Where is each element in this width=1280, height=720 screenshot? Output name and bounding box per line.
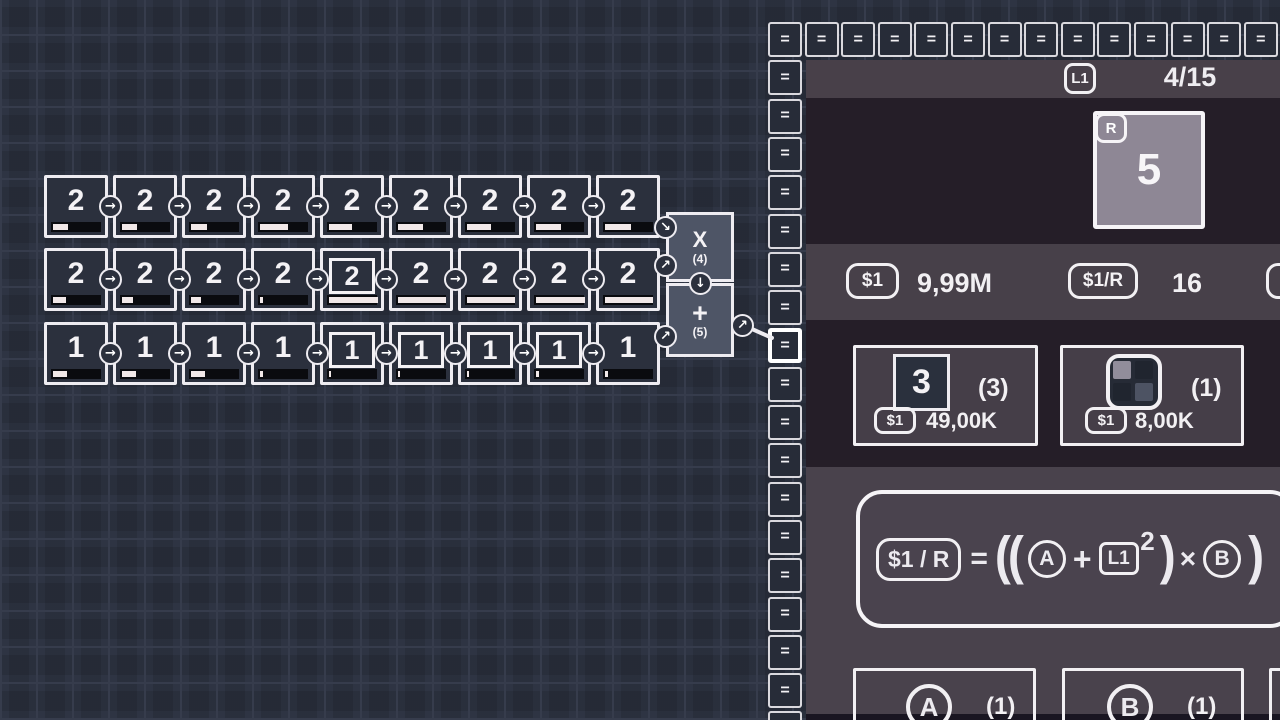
arrow-right-icon[interactable]: → bbox=[99, 268, 122, 291]
cell-value: 2 bbox=[482, 256, 499, 292]
rate-value: 16 bbox=[1172, 268, 1202, 299]
cell-progress-track bbox=[189, 369, 239, 379]
grid-2x2-icon bbox=[1106, 354, 1162, 410]
cell-progress-fill bbox=[605, 297, 653, 303]
shop-card-grid[interactable]: (1) $1 8,00K bbox=[1060, 345, 1244, 446]
arrow-up-right-icon[interactable]: ↗ bbox=[654, 254, 677, 277]
circled-b-icon: B bbox=[1203, 540, 1241, 578]
cell-progress-track bbox=[603, 295, 653, 305]
equals-slot[interactable]: = bbox=[768, 99, 802, 134]
arrow-right-icon[interactable]: → bbox=[375, 342, 398, 365]
shop-card-number-3[interactable]: 3 (3) $1 49,00K bbox=[853, 345, 1038, 446]
equals-slot[interactable]: = bbox=[951, 22, 985, 57]
cell-progress-track bbox=[396, 295, 446, 305]
price-value: 49,00K bbox=[926, 408, 997, 434]
cell-progress-fill bbox=[53, 297, 66, 303]
arrow-right-icon[interactable]: → bbox=[168, 268, 191, 291]
shop-card-count: (1) bbox=[1187, 693, 1216, 720]
cell-value: 2 bbox=[620, 256, 637, 292]
panel-section-tile bbox=[806, 98, 1280, 244]
cell-value: 2 bbox=[551, 256, 568, 292]
game-screen: 2→2→2→2→2→2→2→2→22→2→2→2→2→2→2→2→21→1→1→… bbox=[0, 0, 1280, 720]
equals-slot[interactable]: = bbox=[1171, 22, 1205, 57]
cell-value: 1 bbox=[137, 330, 154, 366]
shop-card-count: (1) bbox=[986, 693, 1015, 720]
multiply-sign: × bbox=[1180, 543, 1196, 575]
price-currency-badge: $1 bbox=[1085, 407, 1127, 434]
equals-slot[interactable]: = bbox=[768, 635, 802, 670]
grid-cell[interactable]: 2 bbox=[596, 175, 660, 238]
cell-progress-fill bbox=[260, 224, 288, 230]
circled-a-icon: A bbox=[906, 684, 952, 720]
cell-value: 2 bbox=[413, 256, 430, 292]
cell-progress-track bbox=[327, 222, 377, 232]
equals-slot[interactable]: = bbox=[768, 175, 802, 210]
cell-progress-track bbox=[258, 222, 308, 232]
cell-progress-fill bbox=[53, 224, 68, 230]
arrow-right-icon[interactable]: → bbox=[168, 195, 191, 218]
equals-slot[interactable]: = bbox=[768, 520, 802, 555]
cell-value: 1 bbox=[275, 330, 292, 366]
cell-progress-fill bbox=[329, 224, 352, 230]
l1-box: L1 bbox=[1099, 542, 1139, 575]
arrow-right-icon[interactable]: → bbox=[306, 268, 329, 291]
equals-slot[interactable]: = bbox=[768, 367, 802, 402]
cell-value: 2 bbox=[68, 183, 85, 219]
price-currency-badge: $1 bbox=[874, 407, 916, 434]
cell-progress-track bbox=[120, 222, 170, 232]
shop-card-count: (1) bbox=[1191, 374, 1222, 403]
multiply-count: (4) bbox=[693, 253, 708, 265]
cell-progress-track bbox=[258, 295, 308, 305]
equals-slot[interactable]: = bbox=[1061, 22, 1095, 57]
l1-term: L1 2 bbox=[1099, 548, 1139, 570]
arrow-right-icon[interactable]: → bbox=[375, 195, 398, 218]
cell-progress-track bbox=[120, 295, 170, 305]
cell-progress-fill bbox=[122, 297, 133, 303]
arrow-up-right-icon[interactable]: ↗ bbox=[731, 314, 754, 337]
cell-value: 2 bbox=[482, 183, 499, 219]
cell-progress-track bbox=[258, 369, 308, 379]
cell-value: 2 bbox=[329, 258, 374, 294]
cell-progress-fill bbox=[536, 224, 561, 230]
equals-slot[interactable]: = bbox=[768, 711, 802, 720]
cell-progress-fill bbox=[398, 297, 446, 303]
arrow-right-icon[interactable]: → bbox=[237, 342, 260, 365]
cell-progress-fill bbox=[260, 371, 263, 377]
multiply-label: X bbox=[693, 229, 708, 251]
equals-slot[interactable]: = bbox=[768, 673, 802, 708]
cell-progress-track bbox=[465, 295, 515, 305]
equals-slot[interactable]: = bbox=[805, 22, 839, 57]
equals-slot[interactable]: = bbox=[1134, 22, 1168, 57]
circled-b-icon: B bbox=[1107, 684, 1153, 720]
equals-slot[interactable]: = bbox=[768, 482, 802, 517]
r-badge: R bbox=[1095, 113, 1127, 143]
level-counter: 4/15 bbox=[1130, 62, 1250, 93]
arrow-right-icon[interactable]: → bbox=[237, 268, 260, 291]
add-label: + bbox=[692, 302, 708, 324]
arrow-right-icon[interactable]: → bbox=[237, 195, 260, 218]
equals-slot[interactable]: = bbox=[1097, 22, 1131, 57]
shop-card-a[interactable]: A (1) bbox=[853, 668, 1036, 720]
cell-value: 2 bbox=[68, 256, 85, 292]
cell-progress-track bbox=[465, 369, 515, 379]
equals-slot[interactable]: = bbox=[914, 22, 948, 57]
cell-progress-fill bbox=[191, 297, 201, 303]
cell-progress-fill bbox=[536, 371, 539, 377]
arrow-right-icon[interactable]: → bbox=[582, 342, 605, 365]
arrow-right-icon[interactable]: → bbox=[168, 342, 191, 365]
equals-slot[interactable]: = bbox=[768, 558, 802, 593]
cell-progress-track bbox=[465, 222, 515, 232]
cell-value: 1 bbox=[68, 330, 85, 366]
shop-card-count: (3) bbox=[978, 374, 1009, 403]
cell-progress-track bbox=[51, 222, 101, 232]
cell-progress-fill bbox=[329, 371, 331, 377]
cell-progress-fill bbox=[467, 371, 469, 377]
equals-slot[interactable]: = bbox=[768, 214, 802, 249]
equals-slot[interactable]: = bbox=[1207, 22, 1241, 57]
reward-tile[interactable]: R 5 bbox=[1093, 111, 1205, 229]
cell-value: 2 bbox=[137, 183, 154, 219]
arrow-right-icon[interactable]: → bbox=[582, 268, 605, 291]
cell-value: 1 bbox=[620, 330, 637, 366]
cell-value: 2 bbox=[620, 183, 637, 219]
cell-progress-track bbox=[327, 369, 377, 379]
arrow-right-icon[interactable]: → bbox=[99, 342, 122, 365]
number-3-tile-icon: 3 bbox=[893, 354, 950, 411]
cell-progress-fill bbox=[605, 224, 631, 230]
cell-progress-fill bbox=[260, 297, 263, 303]
arrow-right-icon[interactable]: → bbox=[513, 268, 536, 291]
open-parens: (( bbox=[995, 526, 1021, 587]
cell-value: 2 bbox=[206, 183, 223, 219]
equals-slot[interactable]: = bbox=[768, 405, 802, 440]
cell-progress-track bbox=[534, 295, 584, 305]
cell-progress-fill bbox=[122, 371, 136, 377]
cell-progress-fill bbox=[467, 224, 491, 230]
equals-slot[interactable]: = bbox=[768, 60, 802, 95]
cell-value: 1 bbox=[398, 332, 443, 368]
cell-progress-fill bbox=[605, 371, 608, 377]
arrow-right-icon[interactable]: → bbox=[513, 342, 536, 365]
arrow-right-icon[interactable]: → bbox=[444, 268, 467, 291]
shop-card-b[interactable]: B (1) bbox=[1062, 668, 1244, 720]
close-paren: ) bbox=[1160, 526, 1173, 587]
equals-slot-selected[interactable]: = bbox=[768, 328, 802, 363]
arrow-right-icon[interactable]: → bbox=[306, 195, 329, 218]
cell-progress-track bbox=[396, 369, 446, 379]
cell-value: 2 bbox=[137, 256, 154, 292]
cell-progress-fill bbox=[467, 297, 515, 303]
equals-slot[interactable]: = bbox=[768, 137, 802, 172]
l1-badge: L1 bbox=[1064, 63, 1096, 94]
cell-progress-track bbox=[189, 222, 239, 232]
arrow-right-icon[interactable]: → bbox=[444, 342, 467, 365]
exponent: 2 bbox=[1140, 526, 1154, 557]
circled-a-icon: A bbox=[1028, 540, 1066, 578]
equals-slot[interactable]: = bbox=[768, 443, 802, 478]
arrow-right-icon[interactable]: → bbox=[444, 195, 467, 218]
equals-slot[interactable]: = bbox=[768, 22, 802, 57]
cropped-stat-badge bbox=[1266, 263, 1280, 299]
cell-progress-track bbox=[603, 369, 653, 379]
cell-progress-track bbox=[189, 295, 239, 305]
cell-progress-track bbox=[603, 222, 653, 232]
equals-slot[interactable]: = bbox=[1024, 22, 1058, 57]
rate-badge: $1/R bbox=[1068, 263, 1138, 299]
money-value: 9,99M bbox=[917, 268, 992, 299]
plus-sign: + bbox=[1073, 541, 1092, 578]
equals-sign: = bbox=[970, 542, 988, 576]
close-paren: ) bbox=[1248, 526, 1261, 587]
arrow-right-icon[interactable]: → bbox=[375, 268, 398, 291]
arrow-up-right-icon[interactable]: ↗ bbox=[654, 325, 677, 348]
arrow-down-icon[interactable]: ↓ bbox=[689, 272, 712, 295]
cell-progress-track bbox=[534, 369, 584, 379]
cell-progress-track bbox=[120, 369, 170, 379]
cell-progress-fill bbox=[329, 297, 378, 303]
cell-progress-fill bbox=[191, 224, 207, 230]
cell-value: 2 bbox=[275, 256, 292, 292]
cell-value: 1 bbox=[329, 332, 374, 368]
add-count: (5) bbox=[693, 326, 708, 338]
cell-value: 2 bbox=[551, 183, 568, 219]
cell-progress-track bbox=[327, 295, 377, 305]
arrow-right-icon[interactable]: → bbox=[513, 195, 536, 218]
equals-slot[interactable]: = bbox=[768, 597, 802, 632]
arrow-down-right-icon[interactable]: ↘ bbox=[654, 216, 677, 239]
cell-progress-fill bbox=[398, 371, 400, 377]
grid-cell[interactable]: 1 bbox=[596, 322, 660, 385]
rate-formula-lhs-badge: $1 / R bbox=[876, 538, 961, 581]
arrow-right-icon[interactable]: → bbox=[582, 195, 605, 218]
equals-slot[interactable]: = bbox=[768, 252, 802, 287]
equals-slot[interactable]: = bbox=[988, 22, 1022, 57]
equals-slot[interactable]: = bbox=[1244, 22, 1278, 57]
cell-progress-fill bbox=[53, 371, 67, 377]
cell-progress-track bbox=[51, 295, 101, 305]
money-badge: $1 bbox=[846, 263, 899, 299]
equals-slot[interactable]: = bbox=[768, 290, 802, 325]
cell-progress-track bbox=[396, 222, 446, 232]
grid-cell[interactable]: 2 bbox=[596, 248, 660, 311]
price-value: 8,00K bbox=[1135, 408, 1194, 434]
cell-value: 1 bbox=[536, 332, 581, 368]
cell-value: 1 bbox=[467, 332, 512, 368]
cell-progress-fill bbox=[536, 297, 585, 303]
cell-progress-fill bbox=[122, 224, 137, 230]
shop-card-cropped[interactable] bbox=[1269, 668, 1280, 720]
cell-value: 2 bbox=[206, 256, 223, 292]
equals-slot[interactable]: = bbox=[878, 22, 912, 57]
arrow-right-icon[interactable]: → bbox=[306, 342, 329, 365]
cell-value: 2 bbox=[344, 183, 361, 219]
cell-progress-fill bbox=[191, 371, 205, 377]
cell-value: 2 bbox=[275, 183, 292, 219]
arrow-right-icon[interactable]: → bbox=[99, 195, 122, 218]
cell-value: 2 bbox=[413, 183, 430, 219]
cell-progress-track bbox=[51, 369, 101, 379]
reward-tile-value: 5 bbox=[1137, 145, 1161, 195]
rate-formula-box: $1 / R = (( A + L1 2 ) × B ) bbox=[856, 490, 1280, 628]
equals-slot[interactable]: = bbox=[841, 22, 875, 57]
cell-value: 1 bbox=[206, 330, 223, 366]
cell-progress-track bbox=[534, 222, 584, 232]
cell-progress-fill bbox=[398, 224, 423, 230]
